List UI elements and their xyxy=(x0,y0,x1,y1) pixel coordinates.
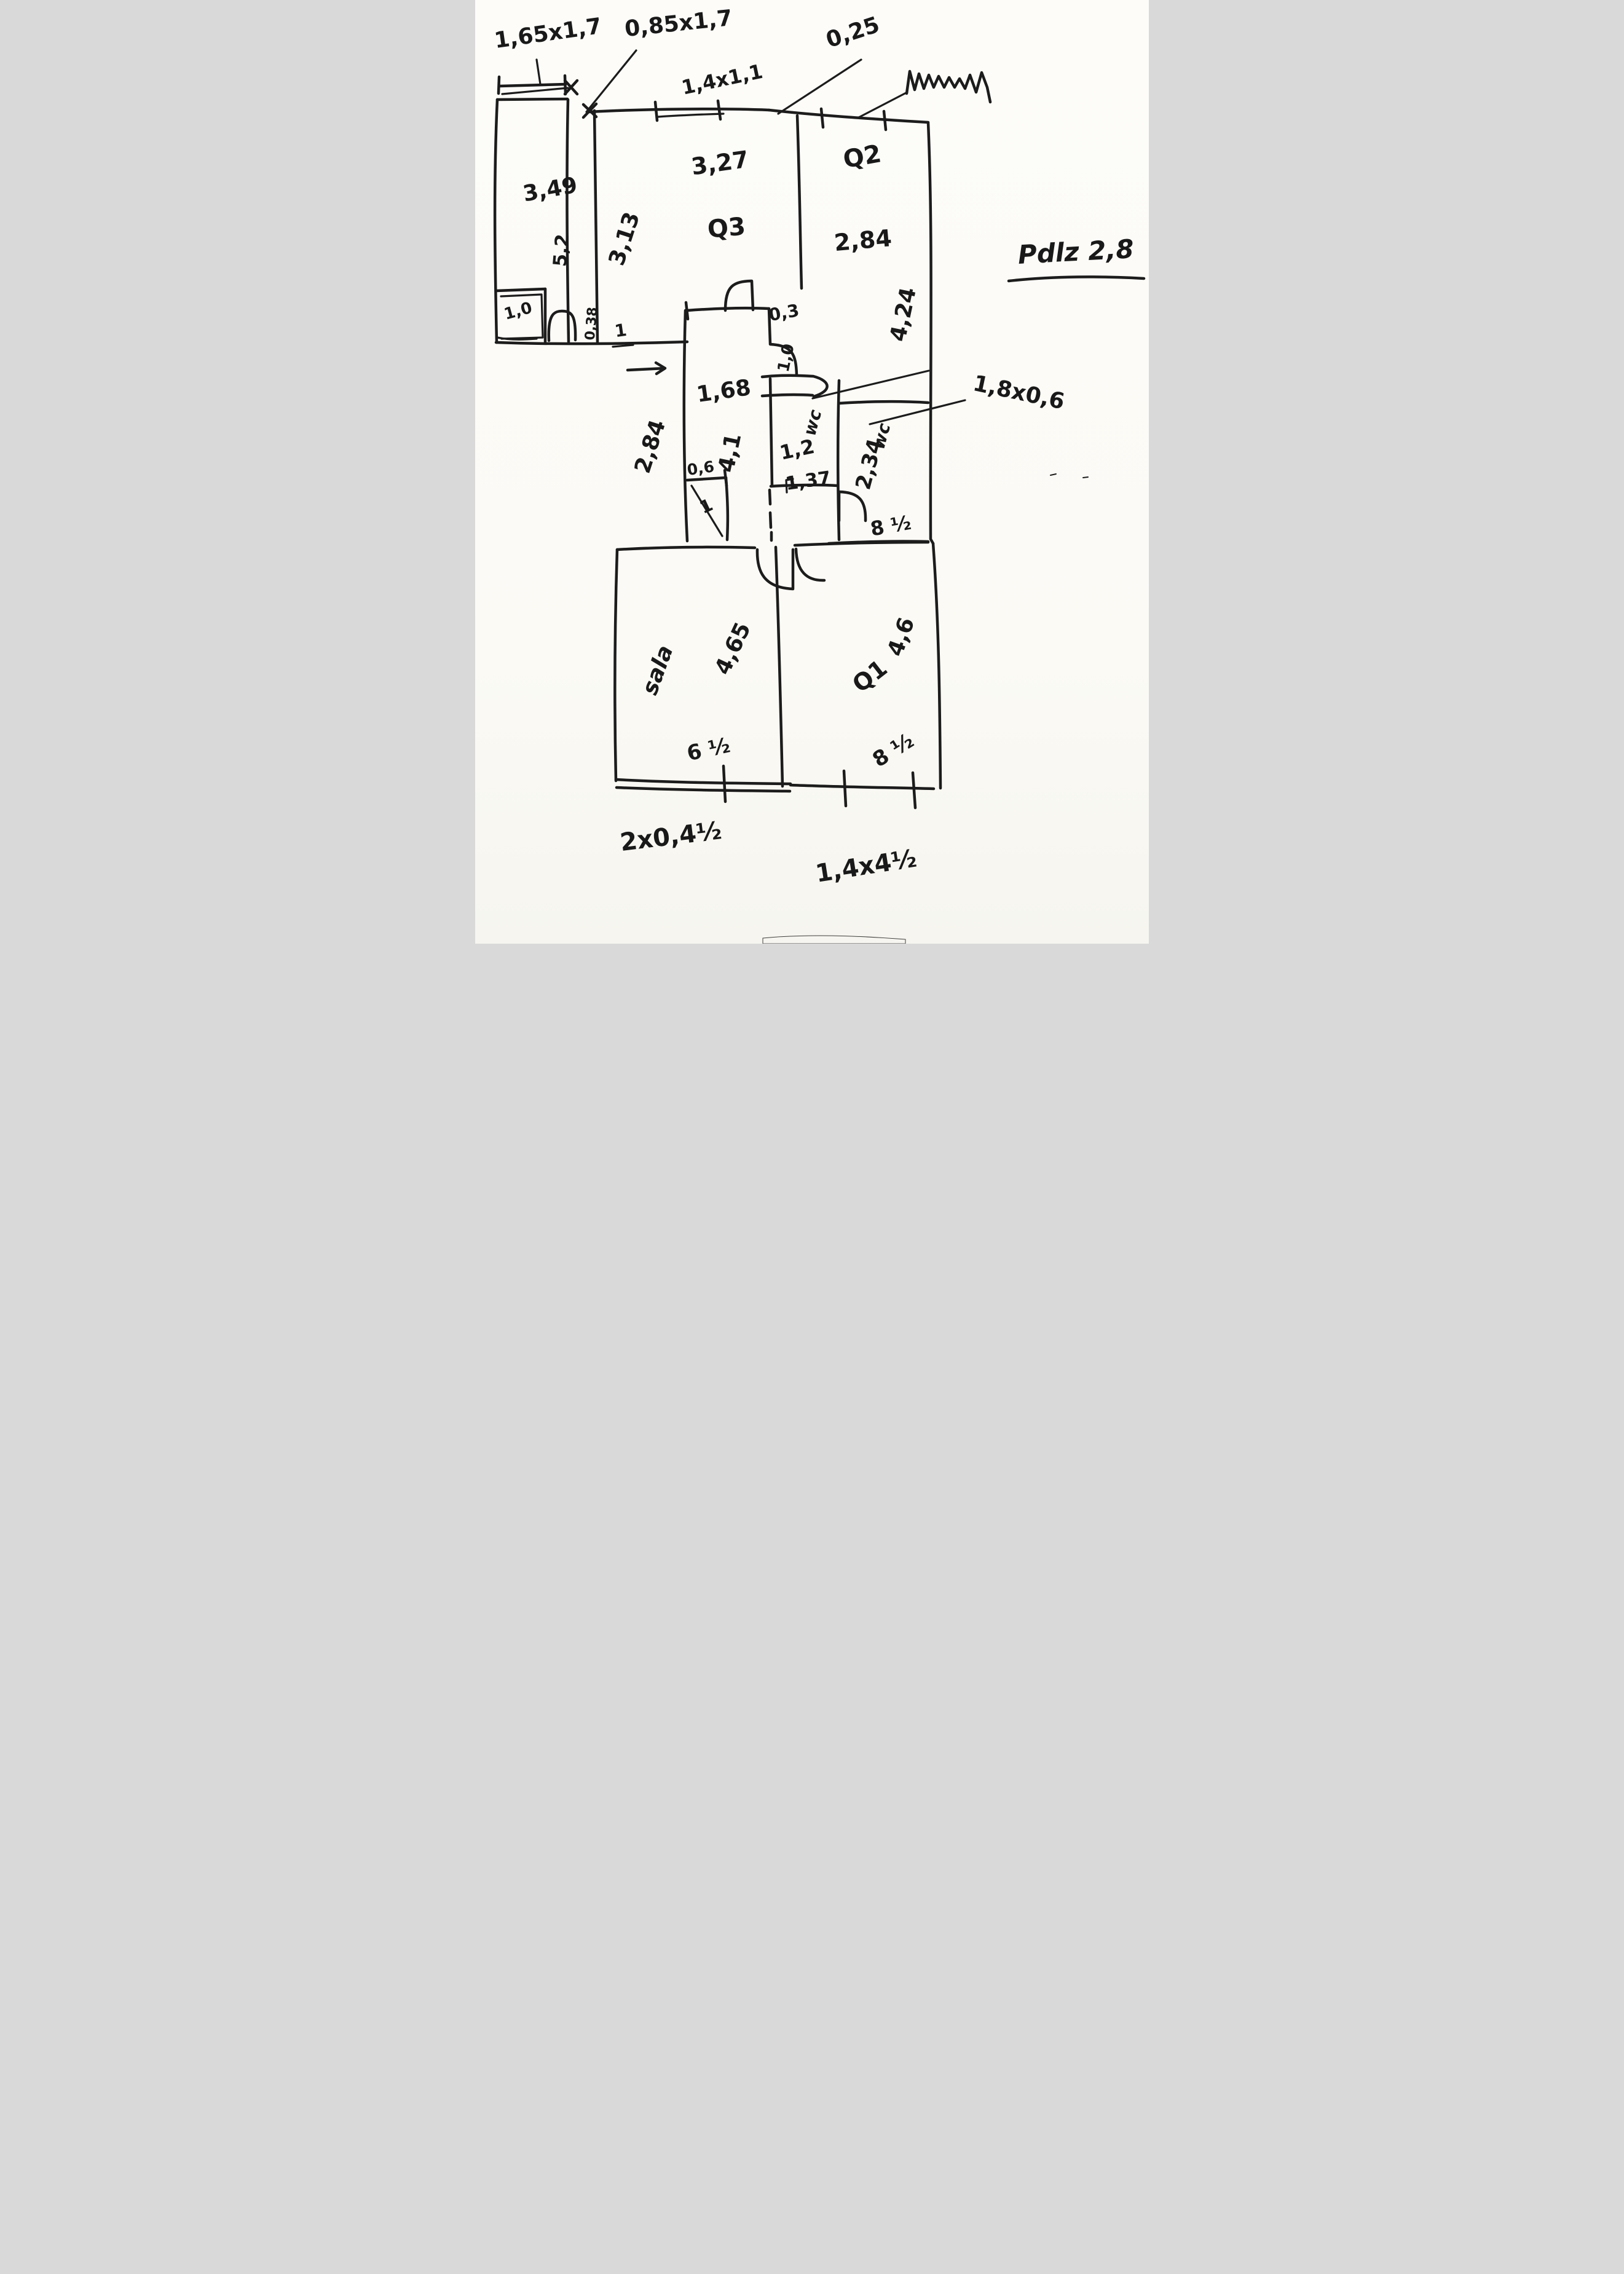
tick-q1-bottom-1 xyxy=(844,771,846,806)
wall-q3-top-double xyxy=(658,114,723,117)
label-height-note: Pdlz 2,8 xyxy=(1017,234,1135,270)
label-q1-length: 4,6 xyxy=(883,614,920,660)
label-q2-name: Q2 xyxy=(841,140,883,174)
wall-sala-top xyxy=(617,547,755,550)
wc1-top-line-1 xyxy=(762,376,813,377)
label-corridor-length: 4,1 xyxy=(714,431,746,475)
label-q3-width: 3,27 xyxy=(690,146,751,181)
wall-q2-right xyxy=(928,123,933,543)
tick-q2-top-2 xyxy=(884,111,886,130)
label-bottom-right-dim: 1,4x4½ xyxy=(813,844,918,888)
wall-corridor-left xyxy=(684,310,687,541)
door-arch-recess xyxy=(549,311,575,341)
label-corridor-door: 1,0 xyxy=(775,342,798,374)
label-corridor-side: 2,84 xyxy=(630,417,671,476)
wall-q1-bottom xyxy=(790,785,934,789)
note-underline xyxy=(1009,277,1144,281)
label-wc2-depth: 2,34 xyxy=(851,436,888,492)
label-top-window-dim: 1,4x1,1 xyxy=(679,60,765,100)
niche-leader-1 xyxy=(870,400,965,424)
paper-specks xyxy=(1050,474,1088,478)
label-corridor-wall: 0,38 xyxy=(583,306,601,341)
wall-hall-left xyxy=(495,100,497,342)
label-wc2-area: 8 ½ xyxy=(869,511,913,541)
leader-door-label xyxy=(586,50,636,112)
label-bottom-left-dim: 2x0,4½ xyxy=(618,816,723,857)
underline-door-tick xyxy=(613,345,633,347)
label-q2-width: 2,84 xyxy=(833,224,893,256)
label-wc1-width: 1,2 xyxy=(778,435,816,465)
label-top-left-window-dim: 1,65x1,7 xyxy=(492,14,603,53)
label-top-left-door-dim: 0,85x1,7 xyxy=(623,6,733,42)
wall-q1-top xyxy=(795,542,928,545)
wall-sala-bottom-2 xyxy=(617,788,790,791)
wall-room-divider xyxy=(776,547,782,786)
label-corridor-width: 1,68 xyxy=(695,375,753,408)
illegible-scribble xyxy=(907,71,990,102)
dim-line-top-left xyxy=(500,84,566,86)
niche-leader-2 xyxy=(813,371,929,398)
label-hall-depth: 5,2 xyxy=(550,233,574,267)
tick-sala-bottom xyxy=(723,766,725,802)
tick-q2-top-1 xyxy=(821,109,823,127)
door-arc-q3 xyxy=(725,281,753,310)
wall-bottom-upper xyxy=(496,342,687,344)
dim-tick-left xyxy=(499,77,499,93)
wall-recess-top xyxy=(496,289,545,291)
label-hall-recess: 1,0 xyxy=(502,299,534,324)
label-corridor-door-tick: 1 xyxy=(613,320,628,341)
label-sala-length: 4,65 xyxy=(710,618,756,679)
closet-right xyxy=(726,478,728,540)
dim-line-double xyxy=(502,88,568,94)
window-tick-2 xyxy=(718,101,720,119)
sketch-page: 1,65x1,7 0,85x1,7 1,4x1,1 0,25 Pdlz 2,8 … xyxy=(475,0,1149,944)
tick-q1-bottom-2 xyxy=(913,773,915,808)
label-sala-name: sala xyxy=(637,642,679,698)
wall-wc1-left xyxy=(770,379,772,486)
wall-wc2-top xyxy=(839,401,928,403)
label-q3-depth: 3,13 xyxy=(604,209,645,269)
wall-hall-top xyxy=(497,99,567,100)
floor-plan-sketch: 1,65x1,7 0,85x1,7 1,4x1,1 0,25 Pdlz 2,8 … xyxy=(475,0,1149,944)
dim-tick-right xyxy=(565,76,566,94)
label-sala-area: 6 ½ xyxy=(685,733,732,766)
label-q3-name: Q3 xyxy=(706,212,747,243)
wc1-door-arc xyxy=(813,376,827,397)
leader-offset-label xyxy=(778,60,861,114)
wall-q1-right xyxy=(933,543,940,788)
photo-edge-smudge xyxy=(763,936,905,944)
wall-sala-left xyxy=(615,550,617,781)
label-q1-name: Q1 xyxy=(847,654,892,698)
door-arc-wc2 xyxy=(839,492,865,521)
entrance-arrow xyxy=(628,363,665,374)
label-wc1-name: wc xyxy=(799,407,826,438)
leader-window-label xyxy=(537,60,540,84)
wall-corridor-top xyxy=(687,308,769,310)
door-arc-q1 xyxy=(796,549,824,580)
label-closet-width: 0,6 xyxy=(686,457,715,479)
label-closet-depth: 1 xyxy=(696,494,716,518)
label-q1-area: 8 ½ xyxy=(869,728,918,772)
wall-q3-top xyxy=(589,109,769,112)
wall-q3-right xyxy=(797,116,802,288)
wall-hall-right xyxy=(567,100,569,342)
wall-sala-bottom-1 xyxy=(616,780,790,784)
label-top-offset-dim: 0,25 xyxy=(823,12,883,53)
label-corridor-top: 0,3 xyxy=(767,300,801,325)
wall-q2-top xyxy=(769,110,928,122)
label-wc2-niche-dim: 1,8x0,6 xyxy=(971,371,1066,414)
window-tick-1 xyxy=(655,102,657,120)
label-q2-depth: 4,24 xyxy=(885,285,921,344)
dashed-wall-below-wc1 xyxy=(770,490,771,540)
label-hall-width: 3,49 xyxy=(521,173,580,207)
label-wc1-depth: 1,37 xyxy=(784,467,832,495)
